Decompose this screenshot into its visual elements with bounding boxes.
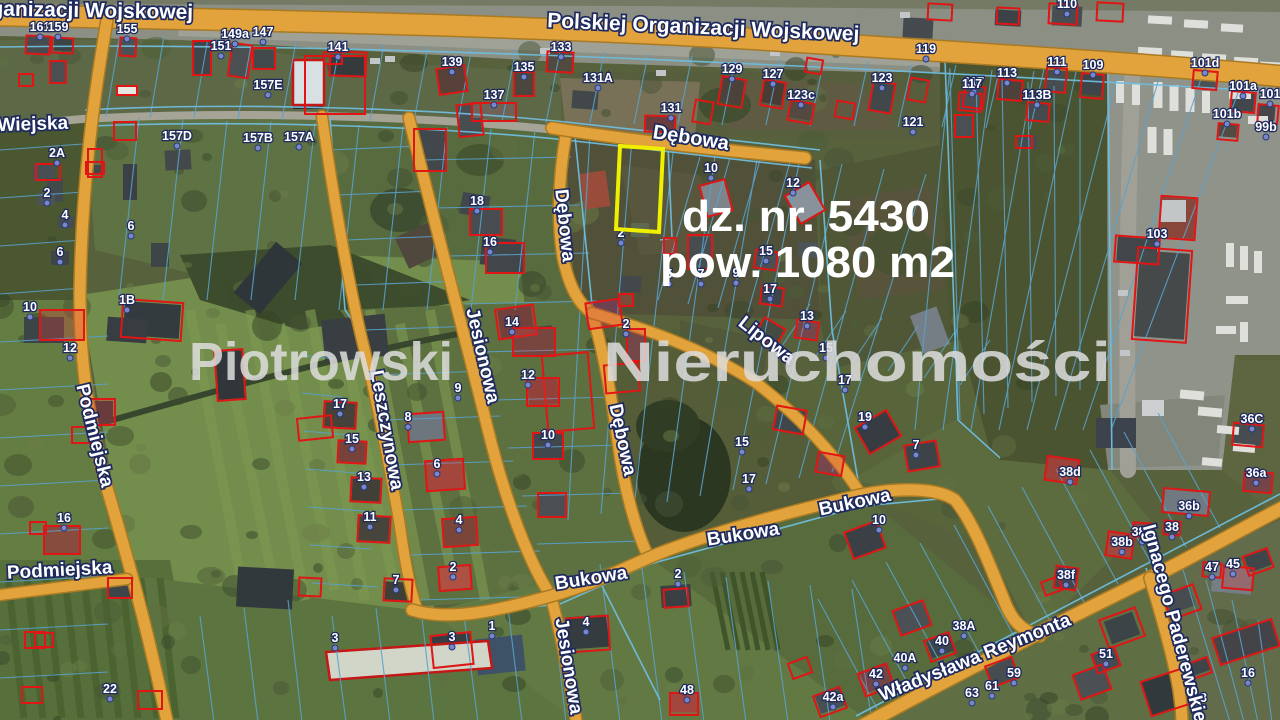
svg-text:42: 42 [869,667,883,681]
svg-text:10: 10 [23,300,37,314]
svg-text:42a: 42a [823,690,845,704]
svg-text:135: 135 [514,60,535,74]
svg-text:131: 131 [661,101,682,115]
svg-text:99b: 99b [1255,120,1277,134]
svg-text:7: 7 [393,573,400,587]
svg-text:38f: 38f [1057,568,1076,582]
svg-text:1: 1 [489,619,496,633]
svg-text:4: 4 [583,615,590,629]
svg-text:113B: 113B [1022,88,1051,102]
svg-text:12: 12 [63,341,77,355]
svg-text:16: 16 [1241,666,1255,680]
svg-text:101: 101 [1260,87,1280,101]
svg-text:Piotrowski: Piotrowski [189,332,453,392]
svg-text:61: 61 [985,679,999,693]
svg-text:137: 137 [484,88,505,102]
svg-text:119: 119 [916,42,936,56]
svg-text:110: 110 [1057,0,1077,11]
svg-text:157E: 157E [253,78,282,92]
svg-text:11: 11 [363,510,376,524]
svg-text:17: 17 [333,397,347,411]
svg-text:36a: 36a [1246,466,1268,480]
svg-text:40A: 40A [894,651,917,665]
svg-text:1B: 1B [119,293,135,307]
svg-text:14: 14 [505,315,519,329]
svg-text:7: 7 [913,438,920,452]
svg-text:19: 19 [858,410,872,424]
svg-text:63: 63 [965,686,979,700]
svg-text:4: 4 [62,208,69,222]
svg-text:15: 15 [345,432,359,446]
svg-text:15: 15 [735,435,749,449]
svg-text:103: 103 [1147,227,1168,241]
svg-text:2: 2 [623,317,630,331]
svg-text:3: 3 [332,631,339,645]
svg-text:151: 151 [211,39,232,53]
svg-text:59: 59 [1007,666,1021,680]
svg-text:40: 40 [935,634,949,648]
svg-text:101d: 101d [1191,56,1220,70]
svg-text:10: 10 [872,513,886,527]
svg-text:129: 129 [722,62,743,76]
svg-text:38b: 38b [1111,535,1133,549]
svg-text:17: 17 [742,472,756,486]
svg-text:131A: 131A [583,71,613,85]
svg-text:121: 121 [903,115,924,129]
svg-text:123c: 123c [787,88,815,102]
svg-text:157A: 157A [284,130,314,144]
svg-text:18: 18 [470,194,484,208]
svg-text:48: 48 [680,683,694,697]
svg-text:2: 2 [675,567,682,581]
svg-text:117: 117 [962,77,982,91]
svg-text:157B: 157B [243,131,273,145]
svg-text:45: 45 [1226,557,1240,571]
svg-text:101b: 101b [1213,107,1242,121]
svg-text:109: 109 [1083,58,1104,72]
svg-text:38: 38 [1165,520,1179,534]
svg-text:127: 127 [763,67,784,81]
svg-text:113: 113 [997,66,1017,80]
svg-text:157D: 157D [162,129,192,143]
svg-text:147: 147 [253,25,274,39]
svg-text:3: 3 [449,630,456,644]
svg-text:13: 13 [800,309,814,323]
svg-text:159: 159 [48,20,69,34]
svg-text:Nieruchomości: Nieruchomości [603,330,1111,393]
svg-text:2: 2 [450,560,457,574]
svg-text:dz. nr. 5430: dz. nr. 5430 [682,192,930,241]
svg-text:111: 111 [1047,55,1067,69]
svg-text:Wiejska: Wiejska [0,113,69,136]
svg-text:101a: 101a [1229,79,1258,93]
svg-text:155: 155 [117,22,138,36]
svg-text:47: 47 [1205,560,1219,574]
svg-text:6: 6 [57,245,64,259]
svg-text:6: 6 [128,219,135,233]
svg-text:10: 10 [541,428,555,442]
svg-text:pow. 1080 m2: pow. 1080 m2 [660,238,955,287]
svg-text:9: 9 [455,381,462,395]
svg-text:139: 139 [442,55,463,69]
svg-text:123: 123 [872,71,893,85]
svg-text:141: 141 [328,40,349,54]
svg-text:51: 51 [1099,647,1113,661]
svg-text:4: 4 [456,513,463,527]
svg-text:8: 8 [405,410,412,424]
svg-text:12: 12 [521,368,535,382]
svg-text:2A: 2A [49,146,65,160]
svg-text:36b: 36b [1178,499,1200,513]
svg-text:6: 6 [434,457,441,471]
svg-text:16: 16 [483,235,497,249]
svg-text:10: 10 [704,161,718,175]
svg-text:22: 22 [103,682,117,696]
svg-text:13: 13 [357,470,371,484]
svg-text:2: 2 [44,186,51,200]
svg-text:Organizacji Wojskowej: Organizacji Wojskowej [0,0,193,24]
svg-text:38A: 38A [953,619,976,633]
svg-text:12: 12 [786,176,800,190]
svg-text:36C: 36C [1241,412,1264,426]
svg-text:16: 16 [57,511,71,525]
svg-text:133: 133 [551,40,572,54]
svg-text:38d: 38d [1059,465,1081,479]
